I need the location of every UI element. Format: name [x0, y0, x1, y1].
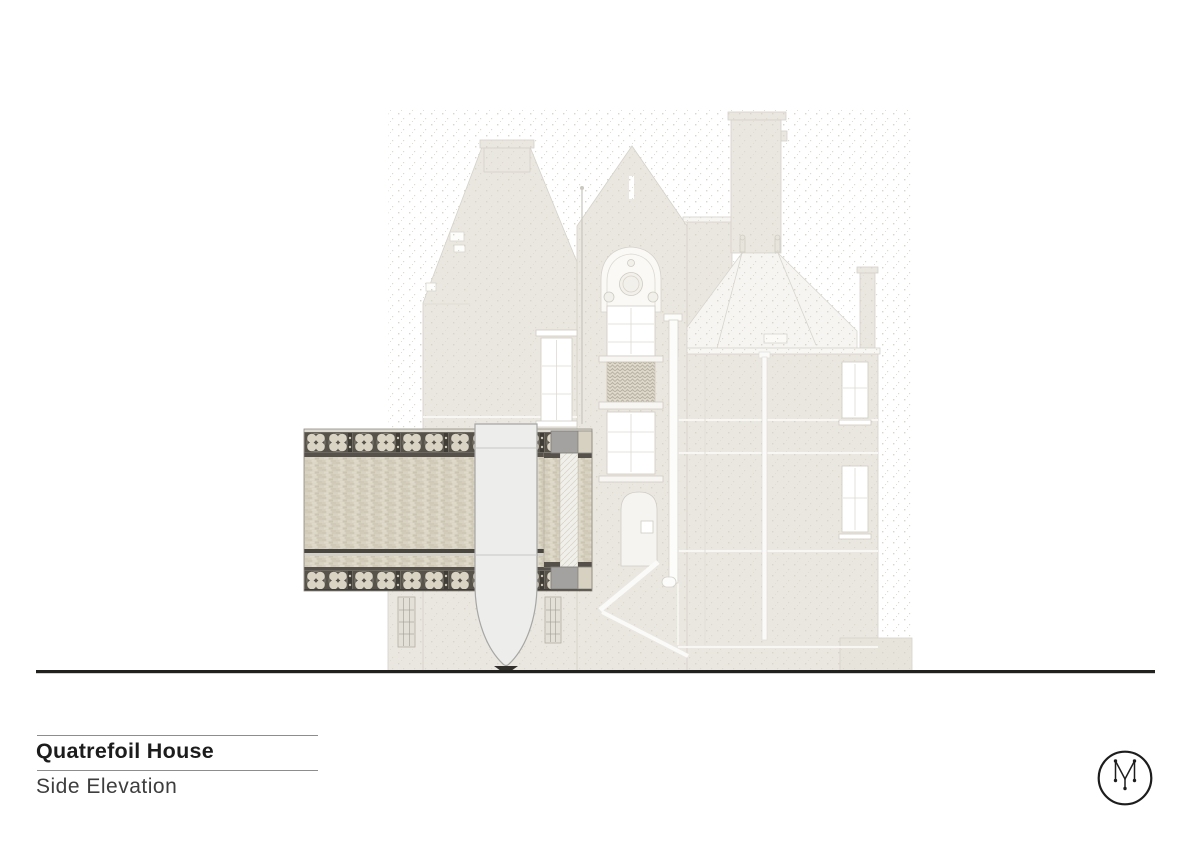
- steel-cap-bottom: [551, 567, 578, 589]
- entrance-door: [621, 492, 657, 566]
- steel-cap-top: [551, 431, 578, 453]
- drawing-sheet: Quatrefoil House Side Elevation: [0, 0, 1190, 841]
- studio-logo: [1096, 749, 1154, 807]
- circle-monogram-icon: [1096, 749, 1154, 807]
- capsule-bay: [475, 424, 537, 671]
- central-bay-windows: [599, 306, 663, 482]
- herringbone-panel: [607, 362, 655, 402]
- band-right-bay: [544, 431, 592, 589]
- hatched-panel: [560, 453, 578, 567]
- quatrefoil-frieze-bottom: [304, 570, 592, 589]
- ground-line: [36, 670, 1155, 673]
- drawing-title: Side Elevation: [36, 775, 436, 799]
- tower-window: [536, 330, 577, 427]
- title-rule-middle: [37, 770, 318, 771]
- gothic-arch-window: [601, 247, 661, 312]
- project-title: Quatrefoil House: [36, 739, 436, 764]
- extension-band: [304, 429, 592, 591]
- elevation-drawing: [0, 0, 1190, 841]
- quatrefoil-frieze-top: [304, 432, 592, 453]
- title-rule-top: [37, 735, 318, 736]
